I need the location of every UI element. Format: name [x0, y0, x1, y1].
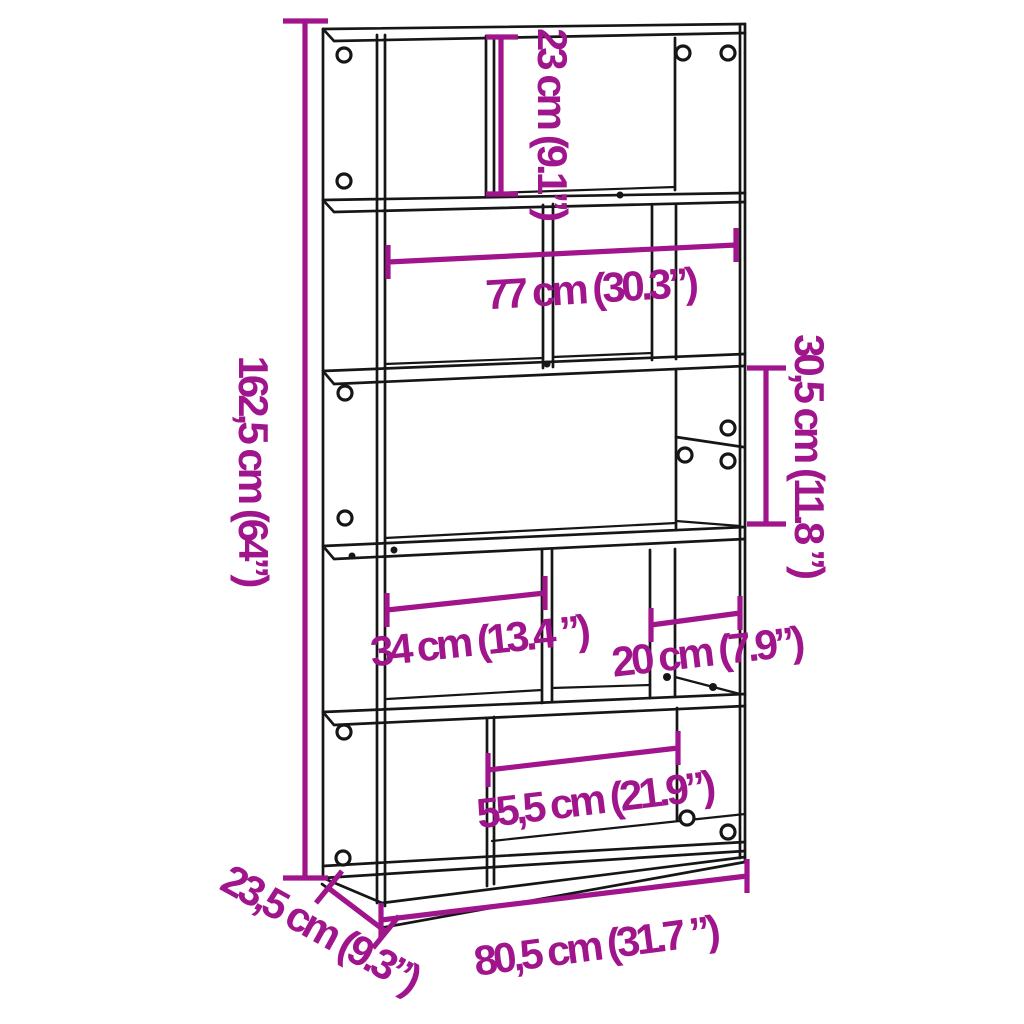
fitting-dot	[617, 192, 624, 199]
screw-hole	[721, 454, 735, 468]
dim-line-overall-height	[283, 21, 328, 878]
screw-hole	[337, 725, 351, 739]
screw-hole	[337, 174, 351, 188]
dim-label-overall-width: 80,5 cm (31.7 ”)	[471, 906, 721, 985]
screw-hole	[338, 511, 352, 525]
screw-hole	[680, 811, 694, 825]
screw-hole	[678, 448, 692, 462]
dim-left-compartment-width: 34 cm (13.4 ”)	[368, 576, 591, 675]
screw-hole	[721, 825, 735, 839]
screw-hole	[336, 851, 350, 865]
dim-line-top-compartment-height	[486, 37, 518, 194]
dim-label-upper-inner-width: 77 cm (30.3”)	[484, 259, 698, 319]
dim-top-compartment-height: 23 cm (9.1”)	[486, 28, 576, 220]
dim-label-right-compartment-width: 20 cm (7.9”)	[609, 617, 805, 685]
screw-hole	[721, 46, 735, 60]
dim-label-bottom-compartment-width: 55,5 cm (21.9”)	[474, 762, 716, 838]
dim-line-middle-compartment-height	[747, 368, 786, 524]
dim-overall-height: 162,5 cm (64”)	[230, 21, 328, 878]
dim-label-left-compartment-width: 34 cm (13.4 ”)	[368, 606, 591, 676]
bookcase-dimension-diagram: 162,5 cm (64”) 23 cm (9.1”) 77 cm (30.3”…	[0, 0, 1024, 1024]
dim-right-compartment-width: 20 cm (7.9”)	[609, 596, 805, 686]
screw-hole	[338, 386, 352, 400]
dim-label-overall-height: 162,5 cm (64”)	[230, 356, 277, 587]
dim-upper-inner-width: 77 cm (30.3”)	[388, 228, 736, 318]
dim-overall-width: 80,5 cm (31.7 ”)	[381, 859, 747, 985]
dim-label-top-compartment-height: 23 cm (9.1”)	[529, 28, 576, 220]
screw-hole	[676, 46, 690, 60]
fitting-dot	[544, 361, 551, 368]
screw-hole	[721, 421, 735, 435]
diagram-canvas: 162,5 cm (64”) 23 cm (9.1”) 77 cm (30.3”…	[0, 0, 1024, 1024]
dim-middle-compartment-height: 30,5 cm (11.8 ”)	[747, 334, 833, 578]
fitting-dot	[391, 547, 398, 554]
screw-hole	[337, 48, 351, 62]
fitting-dot	[349, 553, 356, 560]
dim-label-middle-compartment-height: 30,5 cm (11.8 ”)	[786, 334, 833, 578]
fitting-dot	[709, 683, 717, 691]
